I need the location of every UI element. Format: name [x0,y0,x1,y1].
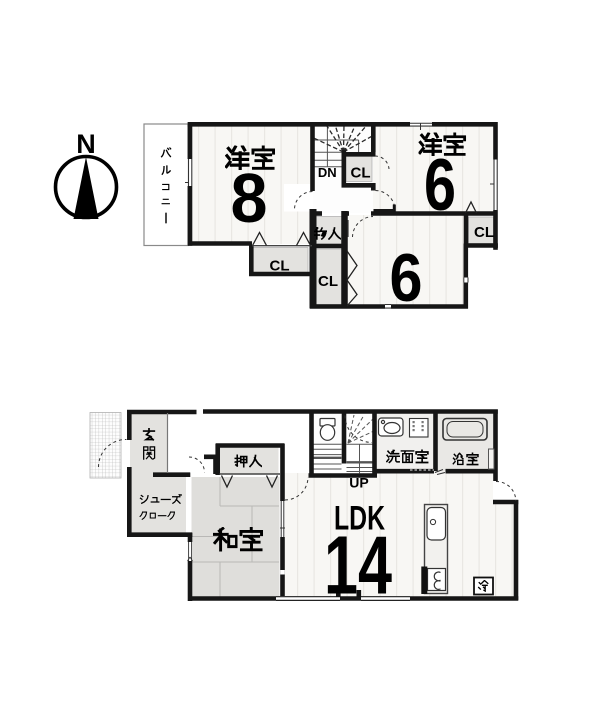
svg-text:N: N [76,129,96,159]
svg-text:CL: CL [270,258,290,275]
svg-text:UP: UP [349,475,368,491]
svg-text:CL: CL [351,165,371,182]
svg-text:DN: DN [318,165,337,180]
svg-text:CL: CL [318,273,338,290]
svg-text:CL: CL [474,224,494,241]
svg-text:8: 8 [231,159,268,237]
svg-text:14: 14 [324,519,392,612]
svg-text:6: 6 [424,145,456,226]
svg-text:6: 6 [390,240,423,316]
